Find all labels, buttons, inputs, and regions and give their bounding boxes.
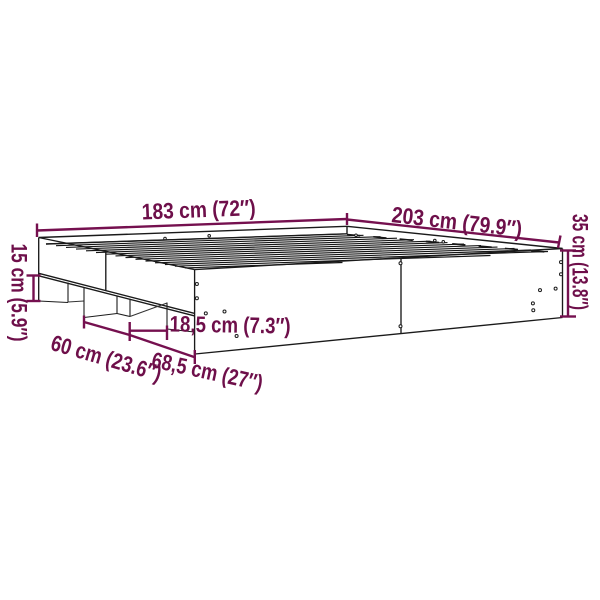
- svg-text:15 cm (5.9″): 15 cm (5.9″): [7, 244, 32, 342]
- svg-text:35 cm (13.8″): 35 cm (13.8″): [568, 214, 593, 310]
- svg-text:183 cm (72″): 183 cm (72″): [141, 195, 256, 224]
- svg-text:18,5 cm (7.3″): 18,5 cm (7.3″): [169, 312, 290, 339]
